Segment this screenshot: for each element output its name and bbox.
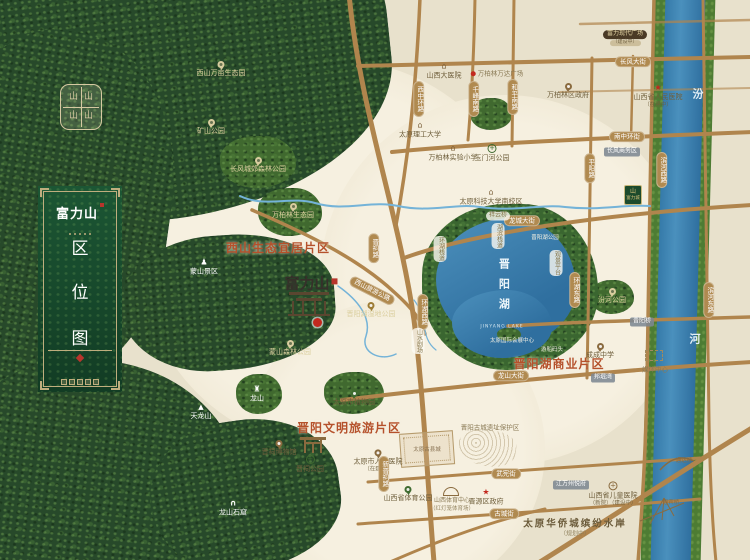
- star-red-icon: [482, 488, 489, 496]
- label-wanbolin-eco-park: 万柏林生态园: [272, 203, 314, 219]
- pin-brown-icon: [597, 343, 604, 350]
- zone-label-wenming: 晋阳文明旅游片区: [297, 422, 401, 436]
- buddha-icon: [200, 258, 207, 266]
- label-shiyan-school: 万柏林实验小学: [429, 144, 478, 161]
- mtn-icon: [198, 404, 203, 411]
- pin-green-icon: [405, 486, 412, 493]
- label-gucheng-town: 太原古县城: [413, 447, 441, 453]
- zone-label-xishan: 西山生态宜居片区: [226, 242, 330, 256]
- label-dayi-hospital: 山西大医院: [427, 62, 462, 79]
- river-char-he: 河: [690, 334, 701, 347]
- label-jinyang-ruins: 晋阳古城遗址保护区: [461, 424, 520, 431]
- label-shanshui-theater: 山水剧场: [412, 328, 425, 354]
- label-yumenhe-park: 玉门河公园: [475, 144, 510, 162]
- pin-light-icon: [255, 157, 262, 164]
- label-xishan-wanmu: 西山万亩生态园: [197, 61, 246, 77]
- pin-light-icon: [218, 61, 225, 68]
- label-oct-waterfront: 太原华侨城缤纷水岸（规划中）: [523, 520, 627, 539]
- label-children-hospital: 山西省儿童医院（新院）（建设中）: [589, 481, 638, 506]
- label-yingbin-bridge: 迎宾桥: [663, 500, 680, 506]
- label-keji-univ: 太原科技大学南校区: [460, 188, 523, 205]
- road-huanhu-east: 环湖东路: [569, 272, 580, 308]
- zone-label-jinyanghu: 晋阳湖商业片区: [513, 358, 604, 372]
- label-jinyang-bridge: 晋阳桥: [630, 318, 654, 327]
- pin-brown-icon: [565, 83, 572, 90]
- label-longshan: 龙山: [250, 385, 264, 402]
- label-jinyanghu-park: 晋阳湖公园: [531, 235, 559, 241]
- pin-green-icon: [351, 390, 358, 397]
- grotto-icon: [230, 499, 237, 507]
- label-ligong-univ: 太原理工大学: [399, 121, 441, 138]
- label-hubin-trail: 湖滨栈道: [492, 223, 505, 249]
- hosp-icon: [609, 481, 618, 490]
- label-chengcheng-school: 成成中学: [586, 343, 614, 359]
- label-longshan-grottoes: 龙山石窟: [219, 499, 247, 516]
- label-huanhu-trail: 环湖栈道: [434, 236, 447, 262]
- star-red-icon: [654, 84, 661, 92]
- dot-red-icon: [471, 72, 476, 77]
- river-char-fen: 汾: [693, 89, 704, 102]
- label-tongda-bridge: 通达桥: [676, 458, 693, 464]
- road-nanzhonghuan-st: 南中环街: [609, 131, 645, 142]
- label-changfeng-forest-park: 长风城郊森林公园: [230, 157, 286, 173]
- label-sports-center: 山西体育中心（红灯笼体育场）: [430, 498, 474, 512]
- road-binhe-east: 滨河东路: [703, 282, 714, 318]
- lake-name: 晋阳湖: [497, 258, 510, 318]
- bldg-icon: [488, 188, 493, 196]
- label-xiangyun-bridge: 祥云桥: [486, 212, 510, 221]
- road-longshan-st: 龙山大街: [493, 370, 529, 381]
- pin-brown-icon: [375, 449, 382, 456]
- label-wanbolin-gov: 万柏林区政府: [547, 83, 589, 99]
- pagoda-icon: [253, 385, 260, 393]
- lake-name-en: JINYANG LAKE: [480, 324, 523, 329]
- project-title: 富力山: [284, 275, 329, 292]
- label-bangkunwan: 邦琨湾: [591, 374, 615, 383]
- road-binhe-west: 滨河西路: [656, 152, 667, 188]
- bldg-icon: [450, 144, 455, 152]
- label-sports-park: 山西省体育公园: [384, 486, 433, 502]
- label-mengshan-scenic: 蒙山景区: [190, 258, 218, 275]
- label-tianlongshan: 天龙山: [191, 404, 212, 420]
- label-kuangshan-park: 矿山公园: [197, 119, 225, 135]
- road-changfeng-st: 长风大街: [615, 56, 651, 67]
- road-jinci-rd: 晋祠路: [368, 233, 379, 263]
- badge-rf-modern-plaza: 富力现代广场（建设中）: [603, 30, 647, 46]
- label-wanda: 万柏林万达广场: [471, 70, 524, 77]
- label-province-hospital: 山西省人民医院（在建中）: [634, 84, 683, 108]
- label-jinyuan-gov: 晋源区政府: [469, 488, 504, 505]
- circ-green-icon: [488, 144, 497, 153]
- road-pingyang-rd: 平阳路: [584, 153, 595, 183]
- pin-brown-icon: [276, 440, 283, 447]
- road-huanhu-west: 环湖西路: [417, 294, 428, 330]
- bldg-icon: [417, 121, 422, 129]
- label-jinci-museum: 晋祠博物馆: [262, 440, 297, 456]
- road-wuxian-st: 武宪街: [491, 468, 521, 479]
- location-map: 山 山 山 山 富力山 区 位 图 西山生态宜居片区晋阳湖商业片区晋阳文明旅游片…: [0, 0, 750, 560]
- badge-rf-city: 富力城: [624, 185, 642, 205]
- road-gucheng-st: 古城街: [489, 508, 519, 519]
- label-convention-center: 太原国际会展中心: [490, 338, 534, 344]
- label-cruise-dock: 游船码头: [541, 347, 563, 353]
- road-qianfeng-rd: 千峰南路: [468, 81, 479, 117]
- label-changfeng-cbd: 长风商务区: [604, 148, 640, 157]
- label-botanical-garden: 太原市植物园: [333, 390, 375, 406]
- label-jinci-park: 晋祠公园: [296, 455, 324, 473]
- pin-light-icon: [290, 203, 297, 210]
- road-xinjinci-rd: 新晋祠路: [378, 456, 389, 492]
- bldg-icon: [441, 62, 446, 70]
- road-xizhonghuan: 西中环路: [413, 81, 424, 117]
- pin-light-icon: [287, 340, 294, 347]
- label-mengshan-forest-park: 蒙山森林公园: [269, 340, 311, 356]
- label-fenhe-park: 汾河公园: [598, 288, 626, 304]
- label-viewing-platform: 观景平台: [550, 250, 563, 276]
- label-jiangwanzhou: 江万州悦府: [553, 481, 589, 490]
- label-media-center: 媒体中心: [642, 366, 668, 373]
- labels-layer: 西山生态宜居片区晋阳湖商业片区晋阳文明旅游片区富力山晋阳湖湿地公园西山万亩生态园…: [0, 0, 750, 560]
- pin-light-icon: [208, 119, 215, 126]
- pin-gold-icon: [368, 302, 375, 309]
- road-heping-rd: 和平南路: [507, 79, 518, 115]
- pin-light-icon: [609, 288, 616, 295]
- circ-green-icon: [306, 455, 315, 464]
